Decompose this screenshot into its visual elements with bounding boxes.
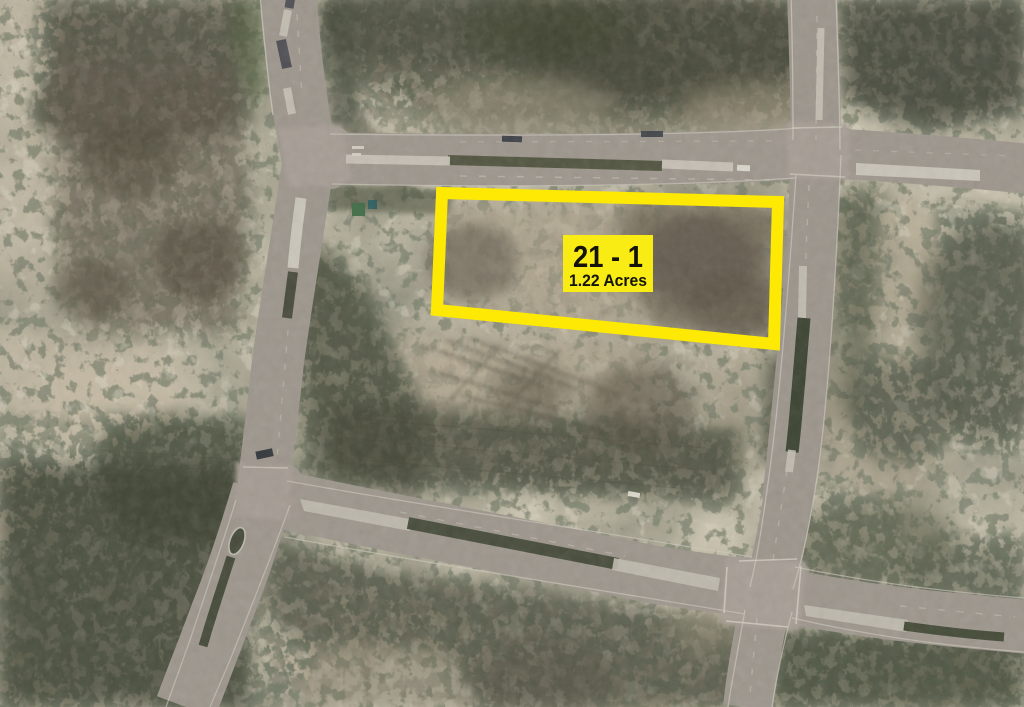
svg-text:21 - 1: 21 - 1 [573,239,643,274]
svg-text:1.22 Acres: 1.22 Acres [569,272,647,290]
